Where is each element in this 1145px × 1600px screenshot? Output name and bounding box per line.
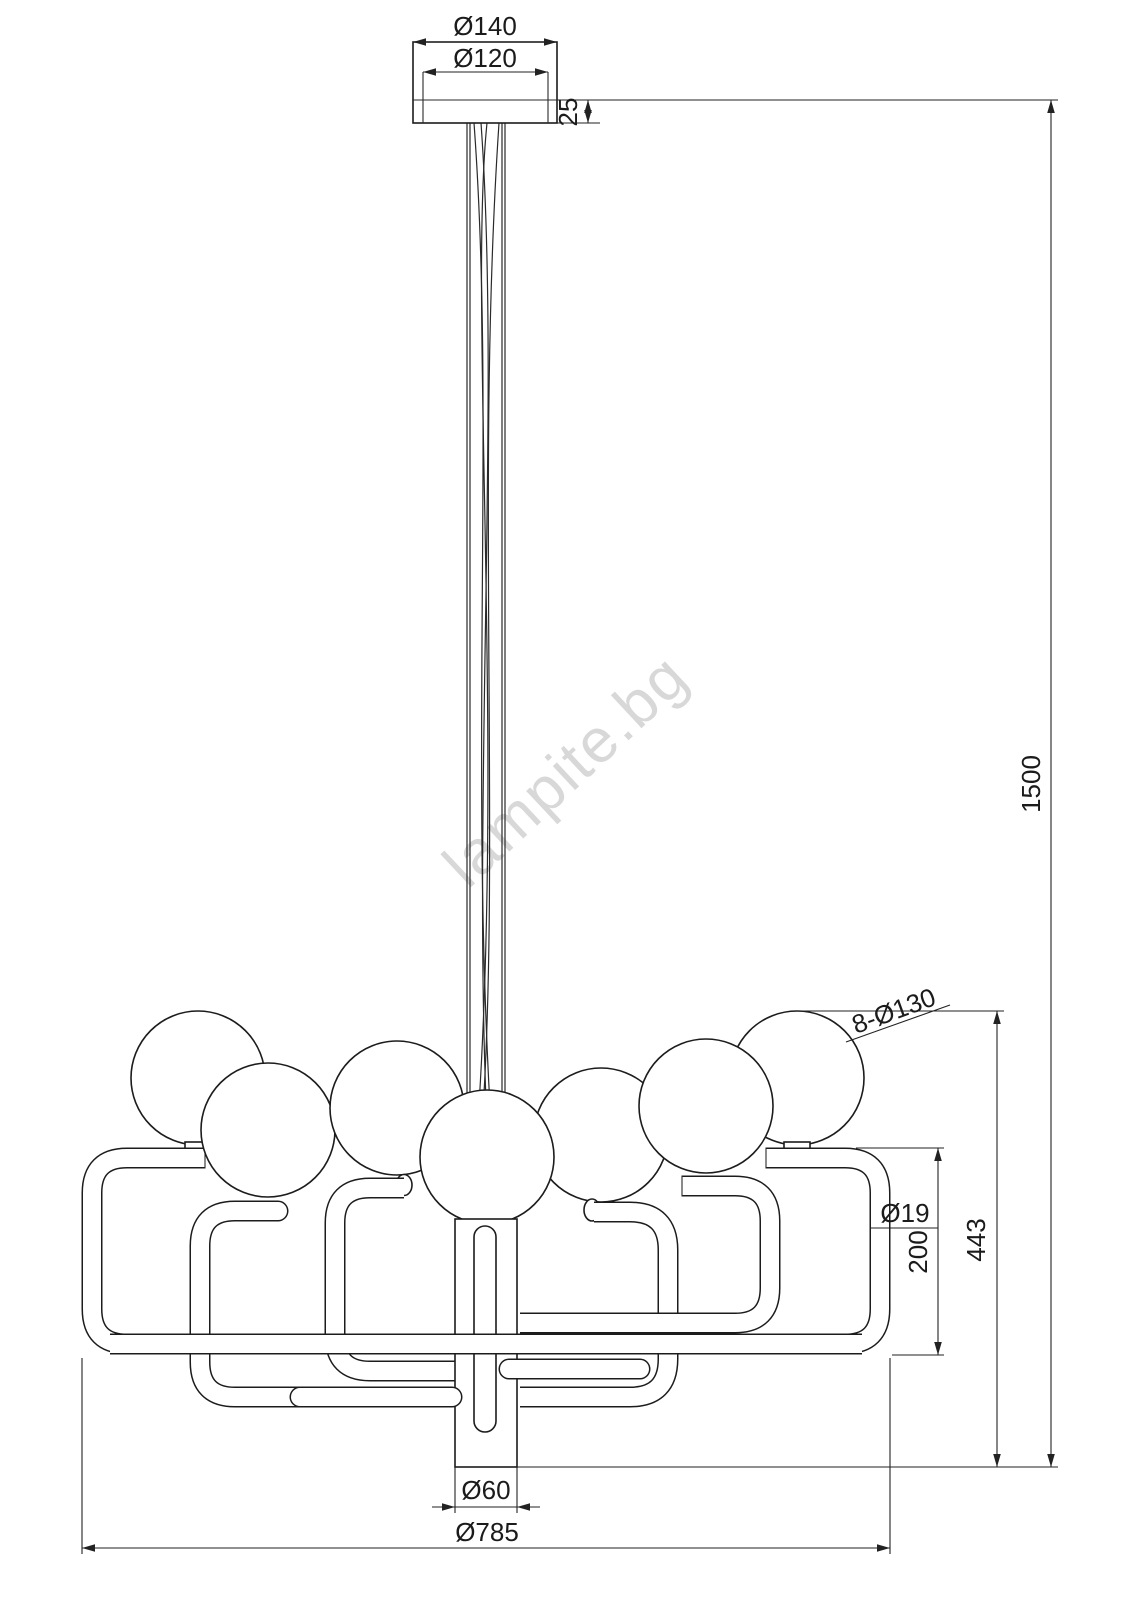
- dim-overall-drop-label: 1500: [1016, 755, 1046, 813]
- dim-balls: 8-Ø130: [846, 982, 950, 1042]
- dim-body-height-label: 443: [961, 1218, 991, 1261]
- dim-canopy-height: 25: [553, 98, 1058, 127]
- dim-balls-label: 8-Ø130: [848, 982, 940, 1040]
- technical-drawing-page: lampite.bg: [0, 0, 1145, 1600]
- dim-canopy-height-label: 25: [553, 98, 583, 127]
- suspension-cables: [467, 123, 505, 1150]
- dim-tube-diameter-label: Ø19: [880, 1198, 929, 1228]
- glass-ball: [639, 1039, 773, 1173]
- dim-canopy-outer-label: Ø140: [453, 11, 517, 41]
- arm-tube: [520, 1176, 770, 1324]
- dim-overall-diameter-label: Ø785: [455, 1517, 519, 1547]
- dim-column-diameter-label: Ø60: [461, 1475, 510, 1505]
- glass-ball: [201, 1063, 335, 1197]
- watermark: lampite.bg: [430, 641, 701, 900]
- chandelier-body: [92, 1011, 880, 1467]
- dim-tube-diameter: Ø19: [871, 1198, 938, 1228]
- glass-ball: [420, 1090, 554, 1224]
- column-slot: [474, 1226, 496, 1432]
- chandelier-dimension-drawing: lampite.bg: [0, 0, 1145, 1600]
- dim-column-diameter: Ø60: [432, 1467, 540, 1513]
- watermark-text: lampite.bg: [430, 641, 701, 900]
- dim-canopy-outer: Ø140: [413, 11, 557, 42]
- dim-canopy-inner-label: Ø120: [453, 43, 517, 73]
- dim-arm-height-label: 200: [903, 1230, 933, 1273]
